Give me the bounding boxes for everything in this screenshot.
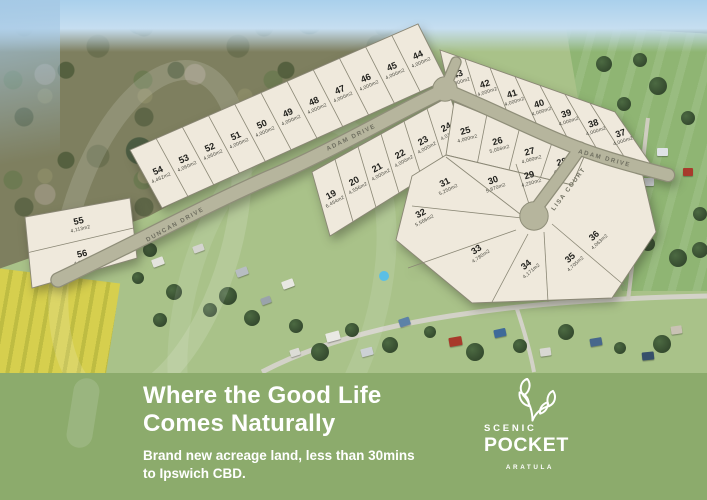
headline-line2: Comes Naturally <box>143 410 415 438</box>
logo-pocket-text: POCKET <box>484 434 576 457</box>
cul-de-sac-bulb <box>521 203 547 229</box>
logo-scenic-text: SCENIC <box>484 423 576 434</box>
masterplan-overlay: 544,462m2534,060m2524,060m2514,000m2504,… <box>0 0 707 373</box>
subline-line1: Brand new acreage land, less than 30mins <box>143 447 415 465</box>
leaf-sprig-icon <box>511 378 557 422</box>
subline-line2: to Ipswich CBD. <box>143 465 415 483</box>
cul-de-sac-bulb <box>434 78 456 100</box>
headline-line1: Where the Good Life <box>143 382 415 410</box>
scenic-pocket-logo: SCENIC POCKET ARATULA <box>484 378 576 471</box>
logo-aratula-text: ARATULA <box>506 464 554 471</box>
watermark-capsule <box>65 376 102 449</box>
banner-text: Where the Good Life Comes Naturally Bran… <box>143 382 415 483</box>
flyer-stage: 544,462m2534,060m2524,060m2514,000m2504,… <box>0 0 707 500</box>
bottom-banner: Where the Good Life Comes Naturally Bran… <box>0 373 707 500</box>
